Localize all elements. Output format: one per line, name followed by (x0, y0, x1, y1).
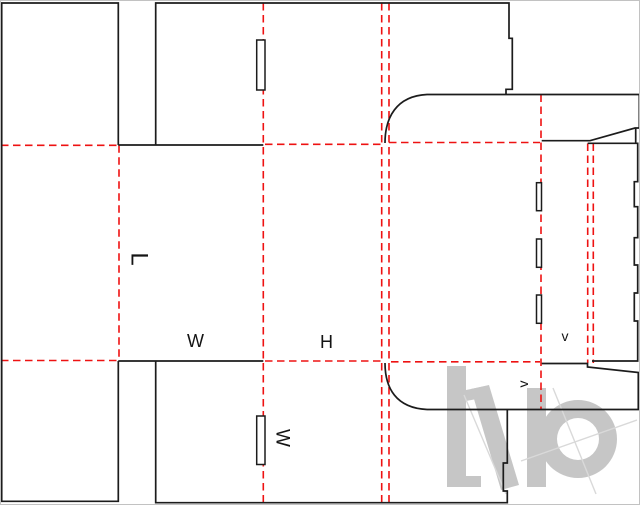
cut-line (2, 3, 119, 501)
slot-cutout (537, 295, 542, 323)
watermark-h-leg (471, 385, 519, 490)
cut-line (156, 3, 513, 145)
slot-cutout (257, 416, 265, 465)
slot-cutout (537, 183, 542, 211)
dieline-canvas: LWHWvv (0, 0, 640, 505)
height-label: H (320, 332, 333, 352)
width-label: W (187, 331, 204, 351)
watermark-h-stem (447, 366, 466, 487)
length-label: L (126, 252, 153, 265)
v-panel-label: v (562, 328, 569, 344)
v-flap-label: v (515, 381, 531, 388)
slot-cutout (537, 239, 542, 267)
cut-line (385, 95, 639, 144)
width-flap-label: W (272, 429, 293, 447)
dieline-drawing: LWHWvv (0, 0, 640, 505)
cut-line (588, 143, 638, 361)
slot-cutout (257, 40, 265, 90)
watermark-h-foot (447, 476, 481, 487)
watermark-b-ring (539, 400, 617, 478)
cut-line (385, 363, 427, 410)
